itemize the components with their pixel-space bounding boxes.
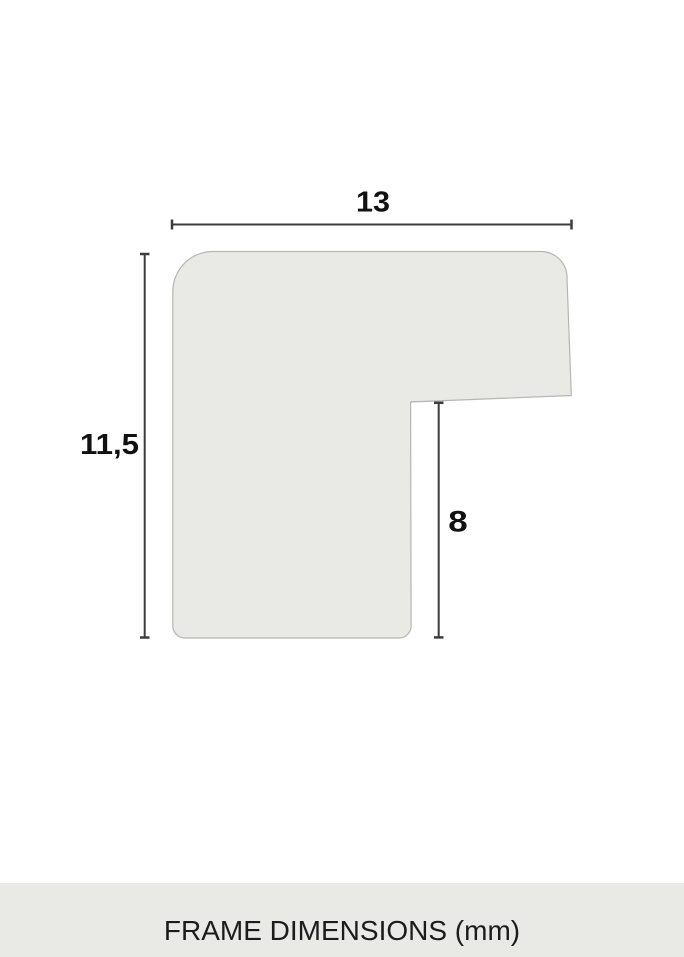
svg-text:13: 13 xyxy=(356,187,390,219)
svg-text:8: 8 xyxy=(448,505,467,538)
svg-text:11,5: 11,5 xyxy=(80,429,139,461)
